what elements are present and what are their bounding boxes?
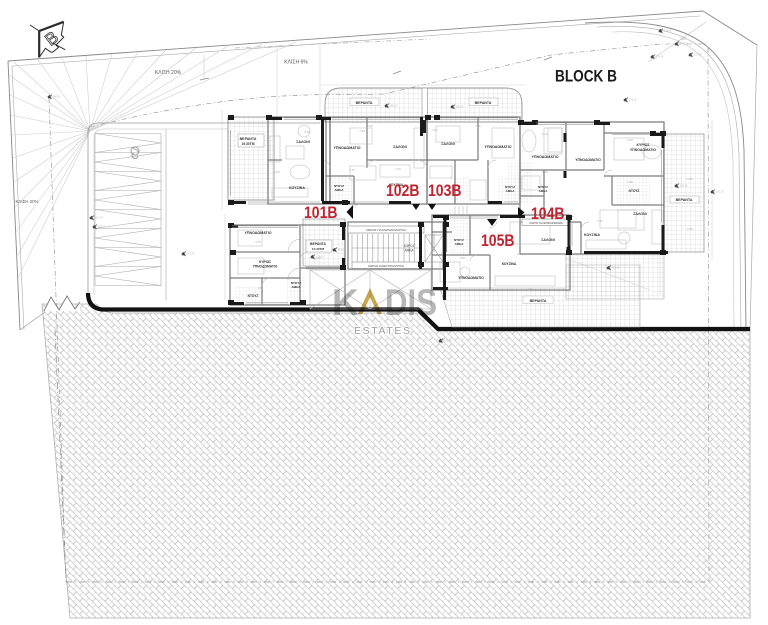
svg-text:ΑΜΕΑ: ΑΜΕΑ — [334, 188, 344, 192]
svg-text:ΒΕΡΑΝΤΑ: ΒΕΡΑΝΤΑ — [356, 101, 373, 105]
svg-text:3.30: 3.30 — [627, 138, 633, 142]
svg-text:2.60: 2.60 — [687, 227, 693, 231]
svg-text:ΣΑΛΟΝΙ: ΣΑΛΟΝΙ — [633, 212, 646, 216]
svg-text:182.05: 182.05 — [612, 267, 620, 270]
svg-text:ΑΜΕΑ: ΑΜΕΑ — [455, 242, 465, 246]
svg-text:ΚΟΥΖΙΝΑ: ΚΟΥΖΙΝΑ — [289, 186, 305, 190]
svg-text:181.75: 181.75 — [95, 217, 103, 220]
svg-text:ΒΕΡΑΝΤΑ: ΒΕΡΑΝΤΑ — [475, 101, 492, 105]
svg-text:ΝΤΟΥΖ: ΝΤΟΥΖ — [629, 189, 640, 193]
svg-text:ΣΑΛΟΝΙ: ΣΑΛΟΝΙ — [541, 238, 554, 242]
svg-text:5.65: 5.65 — [517, 252, 523, 256]
svg-text:ΣΑΛΟΝΙ: ΣΑΛΟΝΙ — [393, 145, 406, 149]
svg-text:180.15: 180.15 — [390, 105, 398, 108]
svg-text:7.40: 7.40 — [367, 124, 373, 128]
svg-text:178.15: 178.15 — [444, 340, 452, 343]
svg-text:4.00: 4.00 — [542, 170, 548, 174]
svg-text:176.76: 176.76 — [680, 43, 688, 46]
svg-text:ΥΠΝΟΔΩΜΑΤΙΟ: ΥΠΝΟΔΩΜΑΤΙΟ — [458, 276, 484, 280]
svg-text:ΚΥΡΙΩΣ: ΚΥΡΙΩΣ — [259, 260, 271, 264]
svg-text:3.70: 3.70 — [349, 168, 355, 172]
svg-text:104B: 104B — [531, 205, 565, 223]
svg-text:ΚΛΙΣΗ 20%: ΚΛΙΣΗ 20% — [155, 70, 182, 76]
svg-text:182.15: 182.15 — [680, 185, 688, 188]
svg-text:2.60: 2.60 — [597, 219, 603, 223]
svg-text:2.40: 2.40 — [527, 287, 533, 291]
svg-text:2.80: 2.80 — [687, 177, 693, 181]
svg-text:3.00: 3.00 — [680, 37, 686, 41]
svg-text:180.15: 180.15 — [456, 106, 464, 109]
svg-text:3.20: 3.20 — [459, 256, 465, 260]
svg-text:ΑΜΕΑ: ΑΜΕΑ — [291, 285, 301, 289]
svg-text:ΧΩΡΟΣ: ΧΩΡΟΣ — [403, 244, 414, 248]
svg-text:ΧΩΡΟΣ ΓΙΑ ΜΗΧΑΝΟΛΟΓΙΚΑ: ΧΩΡΟΣ ΓΙΑ ΜΗΧΑΝΟΛΟΓΙΚΑ — [366, 228, 406, 232]
svg-text:3.30: 3.30 — [359, 129, 365, 133]
svg-text:101B: 101B — [304, 204, 338, 222]
svg-text:3.30: 3.30 — [432, 128, 438, 132]
svg-text:178.26: 178.26 — [694, 54, 702, 57]
svg-text:ΥΠΝΟΔΩΜΑΤΙΟ: ΥΠΝΟΔΩΜΑΤΙΟ — [630, 148, 657, 152]
svg-text:182.05: 182.05 — [338, 249, 346, 252]
svg-text:DIS: DIS — [385, 282, 437, 323]
svg-text:ΒΕΡΑΝΤΑ: ΒΕΡΑΝΤΑ — [240, 137, 257, 141]
svg-text:ΥΠΝΟΔΩΜΑΤΙΟ: ΥΠΝΟΔΩΜΑΤΙΟ — [253, 265, 278, 269]
svg-text:2.90: 2.90 — [274, 170, 280, 174]
svg-text:182.15: 182.15 — [716, 191, 724, 194]
svg-text:ESTATES: ESTATES — [354, 325, 414, 337]
svg-text:ΑΜΕΑ: ΑΜΕΑ — [539, 189, 549, 193]
svg-text:ΧΩΡΟΣ ΗΛΕΚΤΡΟΛΟΓΙΚΑ: ΧΩΡΟΣ ΗΛΕΚΤΡΟΛΟΓΙΚΑ — [368, 264, 404, 268]
svg-text:178.15: 178.15 — [629, 99, 637, 102]
svg-text:5.10: 5.10 — [542, 132, 548, 136]
svg-text:180.05: 180.05 — [53, 96, 61, 99]
svg-text:ΚΛΙΣΗ 6%: ΚΛΙΣΗ 6% — [284, 60, 308, 66]
svg-text:ΥΠΝΟΔΩΜΑΤΙΟ: ΥΠΝΟΔΩΜΑΤΙΟ — [333, 146, 360, 150]
svg-text:ΑΜΕΑ: ΑΜΕΑ — [404, 249, 414, 253]
svg-text:1.80: 1.80 — [257, 286, 263, 290]
svg-text:ΒΕΡΑΝΤΑ: ΒΕΡΑΝΤΑ — [676, 198, 693, 202]
svg-text:103B: 103B — [428, 182, 462, 200]
svg-text:10.30ΤΜ: 10.30ΤΜ — [312, 247, 325, 251]
svg-text:2.85: 2.85 — [627, 180, 633, 184]
svg-text:ΚΟΥΖΙΝΑ: ΚΟΥΖΙΝΑ — [584, 233, 600, 237]
svg-text:181.75: 181.75 — [187, 253, 195, 256]
svg-text:102B: 102B — [386, 182, 420, 200]
svg-text:172.26: 172.26 — [664, 30, 672, 33]
svg-text:ΒΕΡΑΝΤΑ: ΒΕΡΑΝΤΑ — [530, 299, 547, 303]
svg-text:1.10: 1.10 — [395, 167, 401, 171]
svg-text:ΥΠΝΟΔΩΜΑΤΙΟ: ΥΠΝΟΔΩΜΑΤΙΟ — [575, 158, 601, 162]
svg-text:ΣΑΛΟΝΙ: ΣΑΛΟΝΙ — [296, 140, 309, 144]
svg-text:ΥΠΝΟΔΩΜΑΤΙΟ: ΥΠΝΟΔΩΜΑΤΙΟ — [531, 155, 558, 159]
svg-text:ΒΕΡΑΝΤΑ: ΒΕΡΑΝΤΑ — [310, 242, 326, 246]
svg-text:ΝΤΟΥΖ: ΝΤΟΥΖ — [248, 294, 259, 298]
svg-text:BLOCK B: BLOCK B — [555, 67, 617, 86]
svg-text:3.75: 3.75 — [255, 240, 261, 244]
svg-text:182.05: 182.05 — [98, 226, 106, 229]
svg-text:ΚΥΡΙΩΣ: ΚΥΡΙΩΣ — [636, 143, 649, 147]
svg-text:178.05: 178.05 — [316, 256, 324, 259]
svg-text:ΚΟΥΖΙΝΑ: ΚΟΥΖΙΝΑ — [502, 262, 517, 266]
svg-text:ΑΜΕΑ: ΑΜΕΑ — [506, 189, 516, 193]
svg-text:19.30ΤΜ: 19.30ΤΜ — [241, 142, 254, 146]
svg-text:3.50: 3.50 — [304, 130, 310, 134]
svg-text:105B: 105B — [481, 232, 515, 250]
svg-text:ΥΠΝΟΔΩΜΑΤΙΟ: ΥΠΝΟΔΩΜΑΤΙΟ — [244, 231, 271, 235]
svg-text:ΥΠΝΟΔΩΜΑΤΙΟ: ΥΠΝΟΔΩΜΑΤΙΟ — [484, 145, 511, 149]
svg-text:ΣΑΛΟΝΙ: ΣΑΛΟΝΙ — [441, 142, 454, 146]
svg-text:K: K — [332, 282, 359, 323]
